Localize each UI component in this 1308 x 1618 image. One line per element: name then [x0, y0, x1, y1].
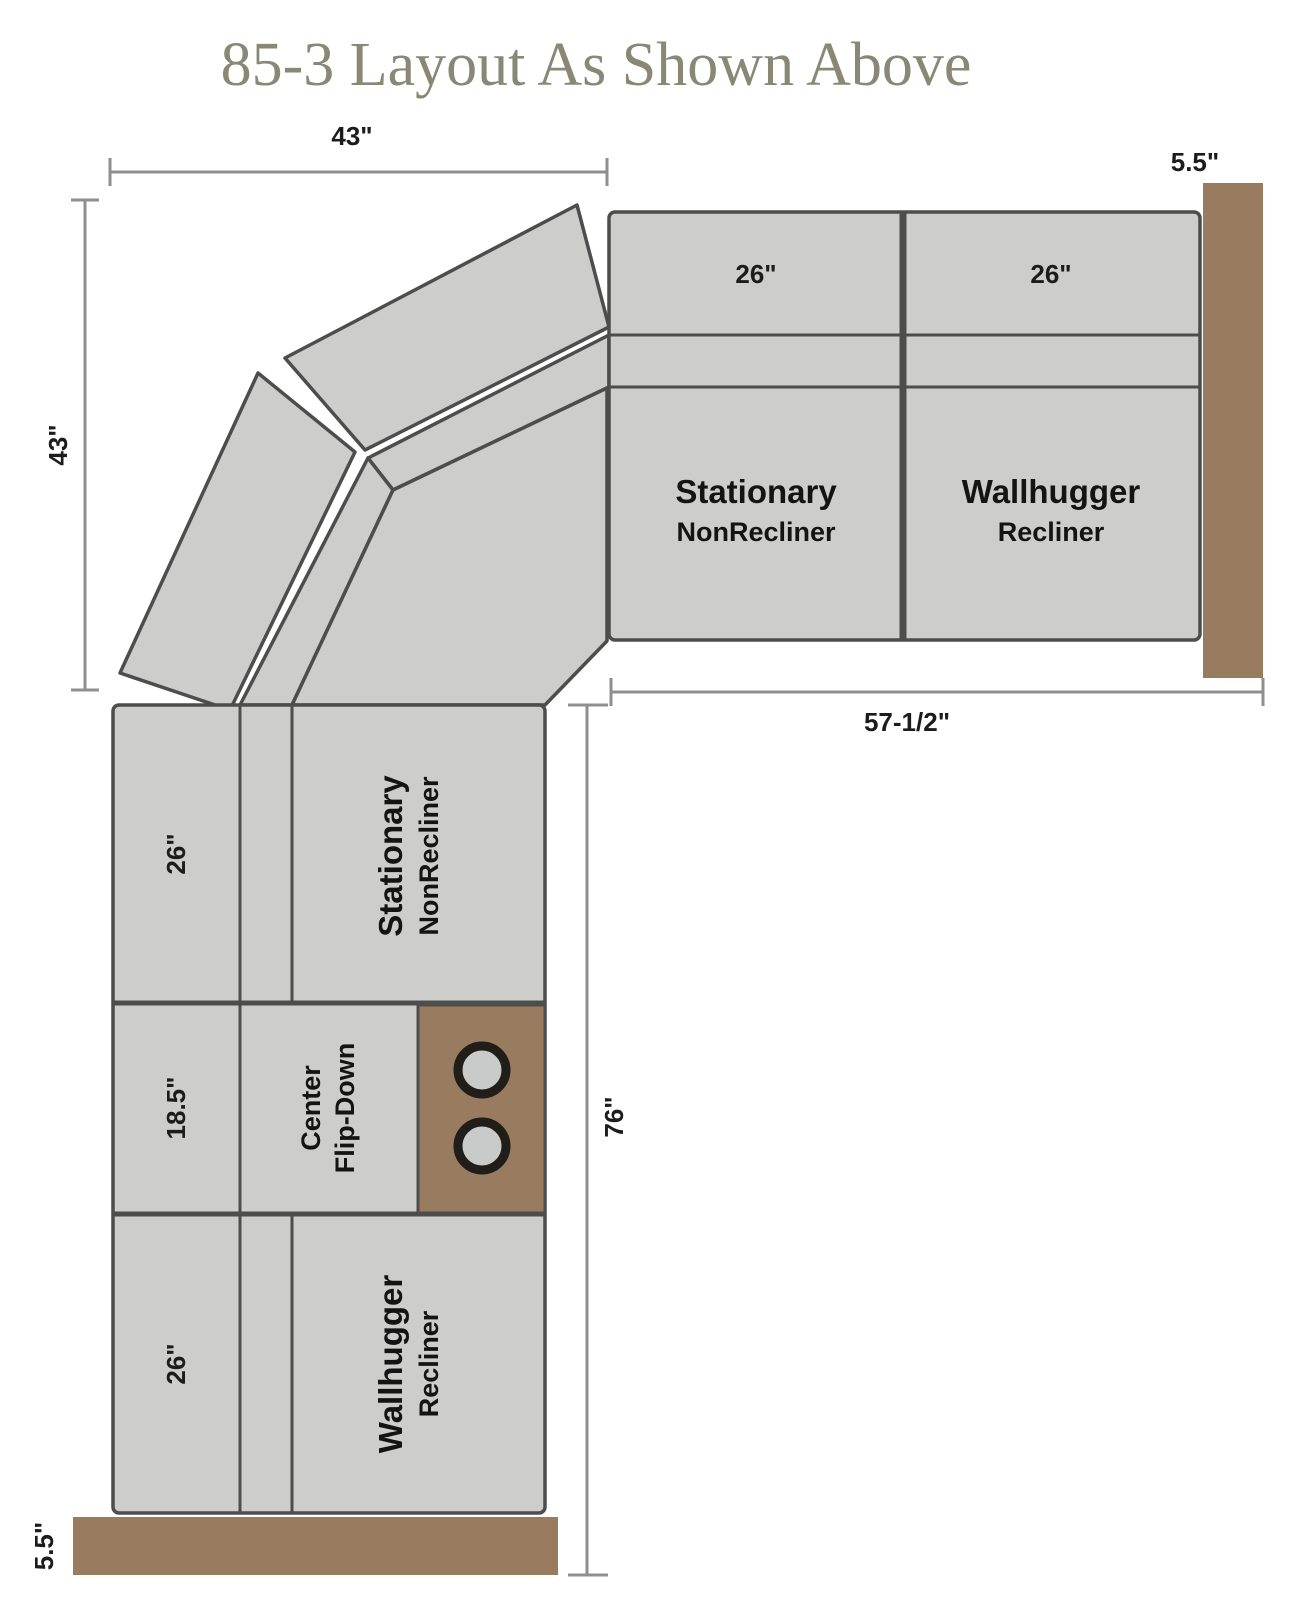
- left-column-run: 26" Stationary NonRecliner 18.5" Center …: [113, 705, 545, 1513]
- left-mid-seat-label-line1: Center: [296, 1065, 326, 1151]
- diagram-title: 85-3 Layout As Shown Above: [221, 31, 972, 99]
- cupholder-icon: [458, 1046, 506, 1094]
- bottom-wall-strip: [73, 1517, 558, 1575]
- dim-bottom-wall-label: 5.5": [29, 1522, 59, 1570]
- left-mid-seat-label-line2: Flip-Down: [330, 1043, 360, 1173]
- left-bottom-back-width-label: 26": [161, 1343, 191, 1384]
- left-top-back-width-label: 26": [161, 833, 191, 874]
- dim-right-run-label: 57-1/2": [864, 707, 950, 737]
- page: 85-3 Layout As Shown Above 26" 26" Stati…: [0, 0, 1308, 1618]
- dim-left-height-label: 43": [43, 424, 73, 465]
- right-back-width-right-label: 26": [1030, 259, 1071, 289]
- dim-right-run-width: 57-1/2": [611, 678, 1263, 737]
- dim-top-width: 43": [110, 121, 607, 186]
- dim-left-run-label: 76": [599, 1096, 629, 1137]
- corner-wedge-unit: [120, 205, 609, 710]
- left-top-seat-label-line2: NonRecliner: [414, 776, 444, 936]
- right-seat-right-label-line2: Recliner: [998, 517, 1105, 547]
- sectional-layout-diagram: 85-3 Layout As Shown Above 26" 26" Stati…: [0, 0, 1308, 1618]
- right-seat-right-label-line1: Wallhugger: [962, 473, 1141, 510]
- right-back-width-left-label: 26": [735, 259, 776, 289]
- right-seat-left-label-line2: NonRecliner: [676, 517, 836, 547]
- right-seat-left-label-line1: Stationary: [675, 473, 837, 510]
- left-top-seat-label-line1: Stationary: [372, 775, 409, 937]
- dim-left-run-height: 76": [568, 705, 629, 1575]
- cupholder-icon: [458, 1122, 506, 1170]
- dim-top-width-label: 43": [331, 121, 372, 151]
- console-flipdown-tray: [418, 1005, 545, 1213]
- left-bottom-seat-label-line1: Wallhugger: [372, 1275, 409, 1454]
- left-mid-back-width-label: 18.5": [161, 1077, 191, 1140]
- left-bottom-seat-label-line2: Recliner: [414, 1310, 444, 1417]
- dim-left-height: 43": [43, 200, 99, 690]
- dim-right-wall-label: 5.5": [1171, 147, 1219, 177]
- left-top-seat-label: Stationary NonRecliner: [372, 775, 444, 937]
- right-wall-strip: [1203, 183, 1263, 678]
- right-sofa-run: 26" 26" Stationary NonRecliner Wallhugge…: [609, 212, 1200, 640]
